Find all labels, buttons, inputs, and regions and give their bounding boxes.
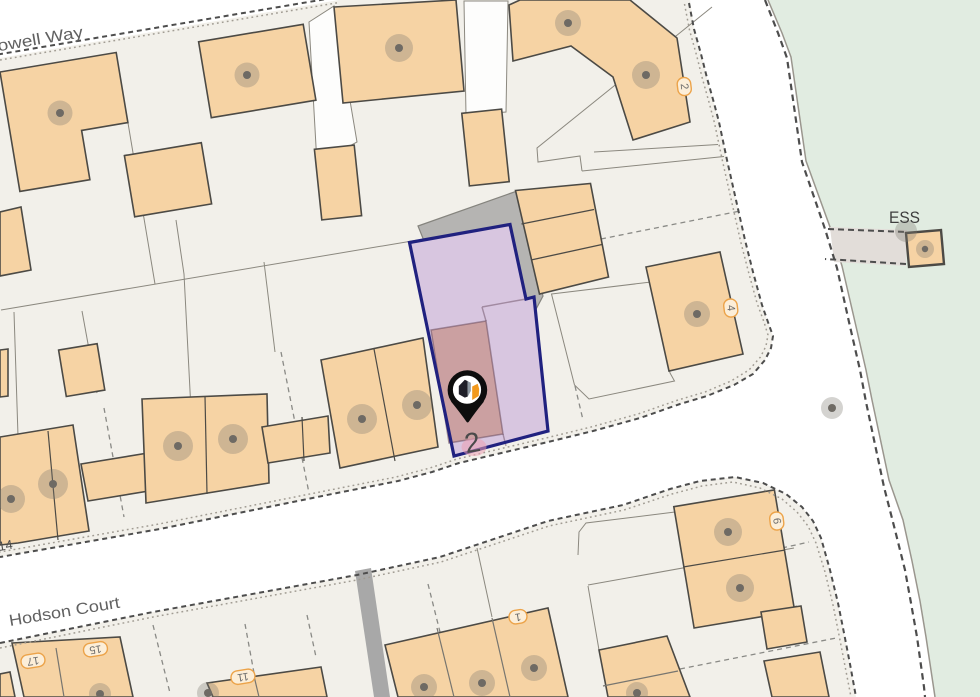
svg-text:17: 17 xyxy=(26,654,40,668)
svg-text:11: 11 xyxy=(236,670,249,684)
svg-text:15: 15 xyxy=(88,642,102,656)
svg-text:14: 14 xyxy=(0,537,14,554)
svg-text:ESS: ESS xyxy=(889,208,920,227)
